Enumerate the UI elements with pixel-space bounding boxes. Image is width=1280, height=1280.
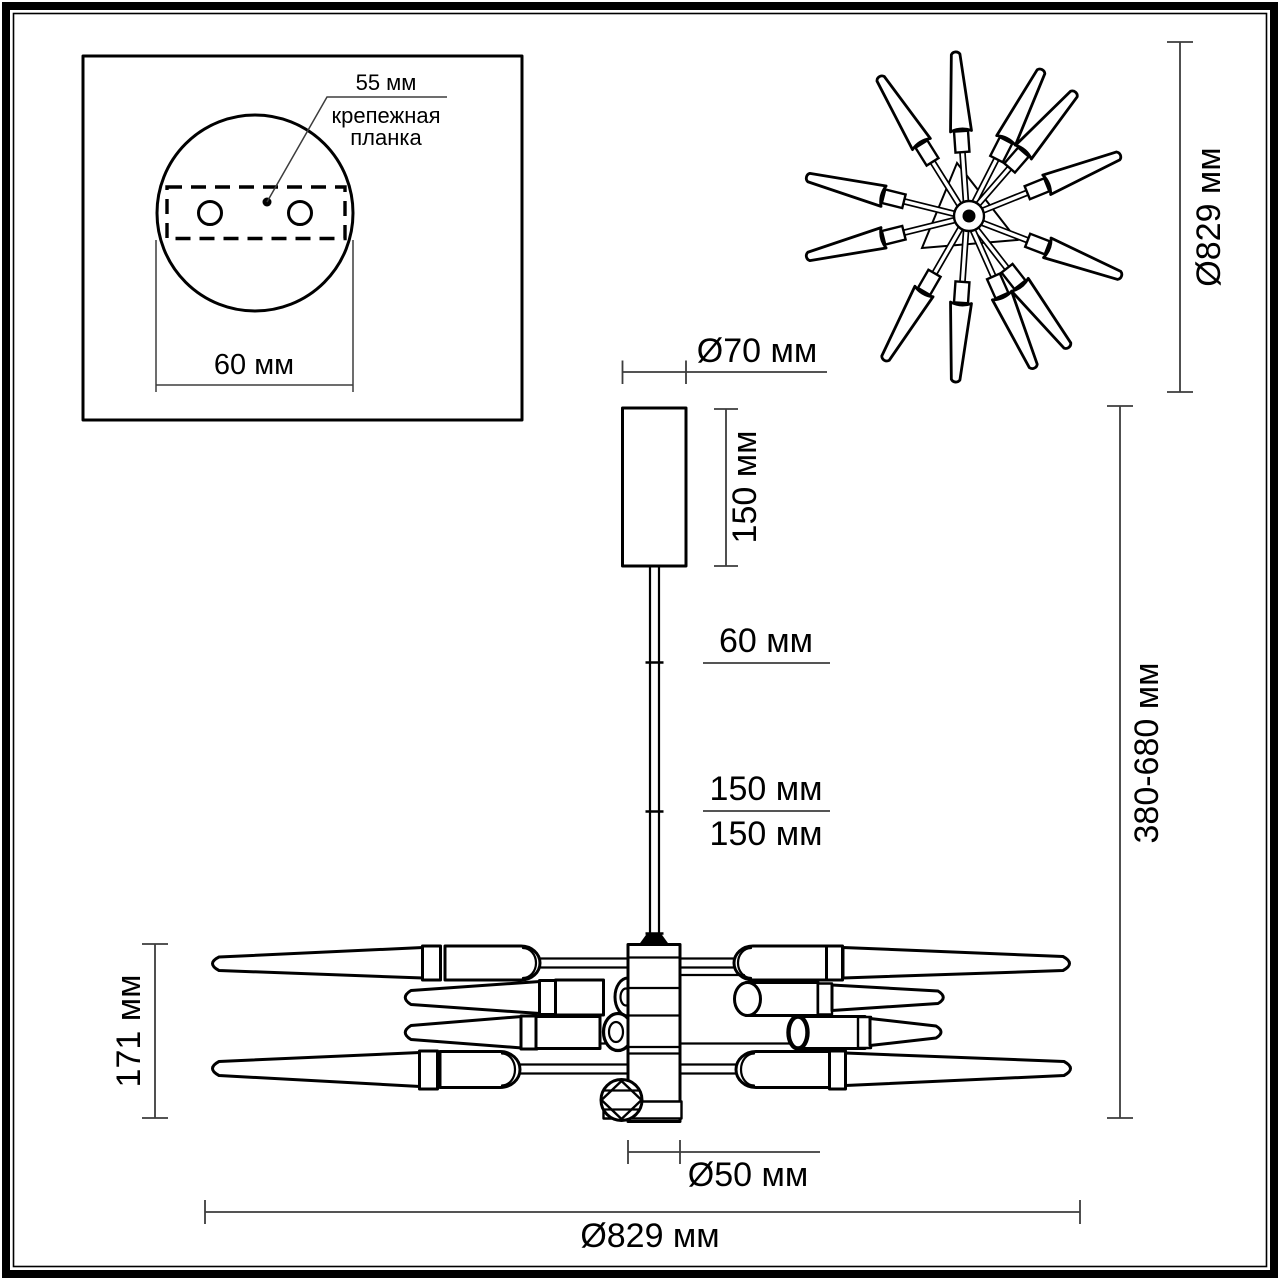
overall-diameter-dimension: Ø829 мм [205, 1200, 1080, 1255]
rod-segment-150-dimension: 150 мм 150 мм [703, 770, 830, 853]
overall-diameter-label: Ø829 мм [580, 1217, 719, 1255]
right-third-holder-cap [789, 1017, 808, 1049]
bracket-label-line2: планка [350, 125, 422, 150]
left-third-holder [536, 1017, 600, 1049]
canopy-diameter-label: Ø70 мм [697, 332, 817, 370]
right-third-cone [870, 1019, 941, 1046]
side-view [213, 408, 1071, 1122]
canopy-height-label: 150 мм [726, 431, 764, 544]
left-top-holder [445, 946, 540, 980]
body-height-label: 171 мм [110, 975, 148, 1088]
left-top-ring [423, 946, 441, 980]
mounting-bracket-dashed-rect [167, 187, 345, 239]
left-second-ring [540, 981, 557, 1015]
height-range-label: 380-680 мм [1128, 663, 1166, 844]
rod-segment-60-label: 60 мм [719, 622, 813, 660]
left-bottom-ring [420, 1051, 438, 1089]
right-second-ring [818, 984, 832, 1015]
rod-hub-connector [639, 934, 669, 945]
hub-diameter-label: Ø50 мм [688, 1156, 808, 1194]
mounting-plate-inset: 55 мм крепежная планка 60 мм [83, 56, 522, 420]
top-view-center-dot [963, 210, 976, 223]
left-third-cone [405, 1017, 522, 1049]
right-second-cone [832, 985, 943, 1011]
rod-segment-60-dimension: 60 мм [703, 622, 830, 663]
rod-segment-150b-label: 150 мм [710, 815, 823, 853]
plate-width-label: 60 мм [214, 349, 294, 381]
left-second-holder [556, 980, 604, 1015]
rod-segment-150a-label: 150 мм [710, 770, 823, 808]
left-second-cone [405, 982, 540, 1014]
bracket-hole-right [289, 202, 312, 225]
right-top-holder [734, 946, 827, 980]
canopy-height-dimension: 150 мм [714, 409, 764, 566]
top-view-diameter-dimension: Ø829 мм [1167, 42, 1228, 392]
canopy-circle [157, 115, 353, 311]
canopy-diameter-dimension: Ø70 мм [623, 332, 828, 384]
left-top-cone [213, 948, 424, 979]
right-top-ring [827, 946, 843, 980]
top-view-diameter-label: Ø829 мм [1190, 147, 1228, 286]
ceiling-canopy [623, 408, 687, 566]
bracket-hole-left [199, 202, 222, 225]
body-height-dimension: 171 мм [110, 944, 168, 1118]
right-bottom-cone [846, 1053, 1071, 1086]
right-bottom-ring [830, 1051, 846, 1089]
suspension-rod [646, 566, 664, 934]
drawing-sheet: 55 мм крепежная планка 60 мм Ø829 мм [0, 0, 1280, 1280]
height-range-dimension: 380-680 мм [1107, 406, 1166, 1118]
right-bottom-holder [736, 1052, 830, 1088]
top-view: Ø829 мм [804, 42, 1228, 392]
left-bottom-cone [213, 1053, 421, 1087]
left-bottom-holder [440, 1052, 520, 1088]
hole-spacing-label: 55 мм [356, 70, 417, 95]
right-second-holder-cap [735, 983, 761, 1016]
right-top-cone [843, 948, 1070, 979]
technical-drawing: 55 мм крепежная планка 60 мм Ø829 мм [0, 0, 1280, 1280]
hub-diameter-dimension: Ø50 мм [628, 1140, 820, 1194]
